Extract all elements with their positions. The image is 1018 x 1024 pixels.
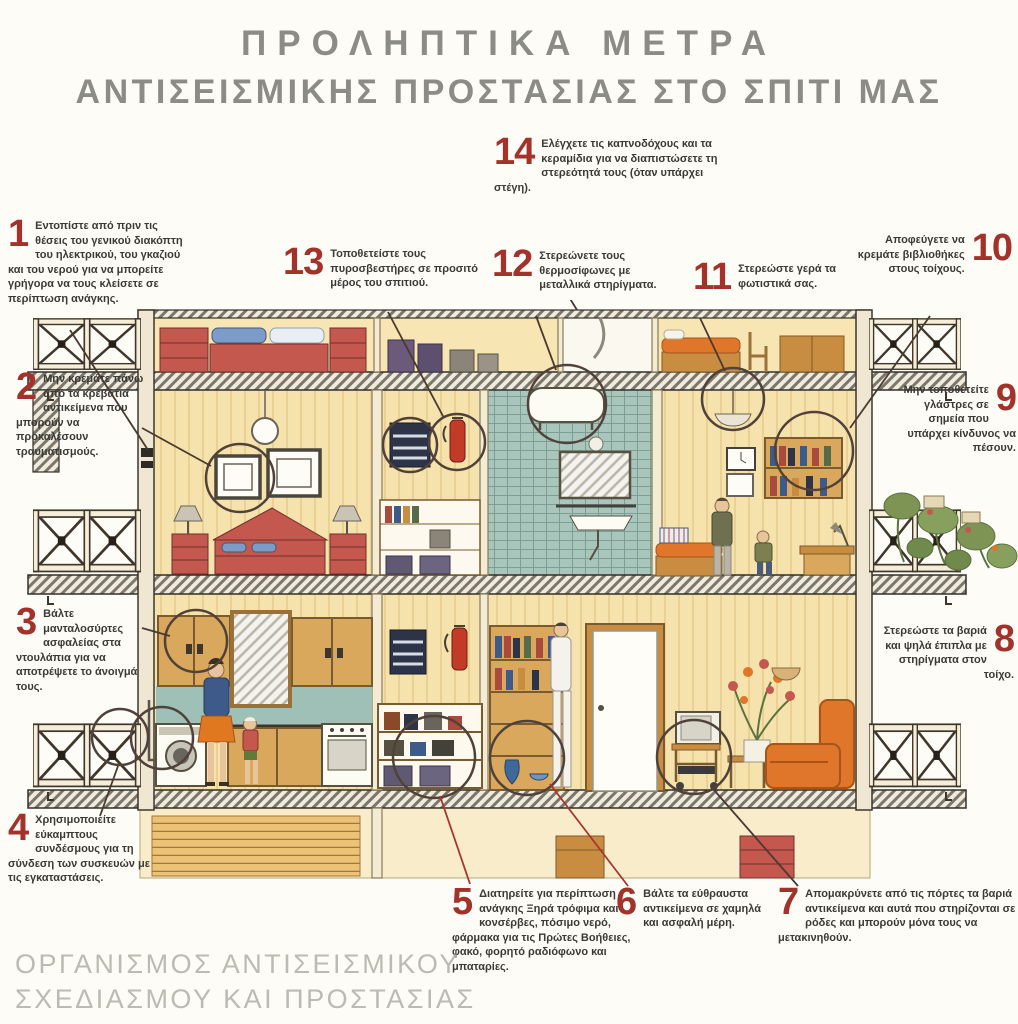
tip-12: 12 Στερεώνετε τους θερμοσίφωνες με μεταλ… bbox=[492, 249, 680, 293]
tip-10: 10 Αποφεύγετε να κρεμάτε βιβλιοθήκες στο… bbox=[856, 233, 1012, 277]
pillow bbox=[664, 330, 684, 339]
nightstand bbox=[330, 534, 366, 574]
tip-12-number: 12 bbox=[492, 249, 532, 279]
water-heater bbox=[528, 388, 604, 422]
attic-dresser-right bbox=[330, 328, 366, 372]
tip-11-text: Στερεώστε γερά τα φωτιστικά σας. bbox=[738, 263, 836, 290]
tip-6-number: 6 bbox=[616, 887, 636, 917]
tip-9: 9 Μην τοποθετείτε γλάστρες σε σημεία που… bbox=[890, 383, 1016, 456]
fire-extinguisher bbox=[450, 420, 465, 462]
mirror bbox=[560, 452, 630, 498]
pillow bbox=[252, 543, 276, 552]
fire-extinguisher bbox=[452, 628, 467, 670]
tip-3: 3 Βάλτε μανταλοσύρτες ασφαλείας στα ντου… bbox=[16, 607, 144, 694]
bedding-stack bbox=[212, 328, 266, 343]
storage-bin bbox=[386, 556, 412, 574]
tip-7-text: Απομακρύνετε από τις πόρτες τα βαριά αντ… bbox=[778, 888, 1015, 944]
poster-title-line2: ΑΝΤΙΣΕΙΣΜΙΚΗΣ ΠΡΟΣΤΑΣΙΑΣ ΣΤΟ ΣΠΙΤΙ ΜΑΣ bbox=[0, 73, 1018, 112]
tip-11: 11 Στερεώστε γερά τα φωτιστικά σας. bbox=[693, 262, 851, 292]
ceiling-lamp bbox=[252, 418, 278, 444]
tip-4-text: Χρησιμοποιείτε εύκαμπτους συνδέσμους για… bbox=[8, 814, 150, 884]
storage-chest bbox=[556, 836, 604, 878]
flower-pot bbox=[962, 512, 980, 523]
poster-title: ΠΡΟΛΗΠΤΙΚΑ ΜΕΤΡΑ ΑΝΤΙΣΕΙΣΜΙΚΗΣ ΠΡΟΣΤΑΣΙΑ… bbox=[0, 24, 1018, 112]
tip-7-number: 7 bbox=[778, 887, 798, 917]
tip-4: 4 Χρησιμοποιείτε εύκαμπτους συνδέσμους γ… bbox=[8, 813, 160, 886]
tip-6-text: Βάλτε τα εύθραυστα αντικείμενα σε χαμηλά… bbox=[643, 888, 761, 929]
nightstand bbox=[172, 534, 208, 574]
house-cross-section-illustration bbox=[0, 300, 1018, 892]
tip-8-number: 8 bbox=[994, 624, 1014, 654]
wall-radio bbox=[390, 630, 426, 674]
storage-bin bbox=[420, 556, 450, 574]
tip-14: 14 Ελέγχετε τις καπνοδόχους και τα κεραμ… bbox=[494, 137, 742, 195]
washing-machine bbox=[156, 724, 206, 786]
suitcase bbox=[418, 344, 442, 372]
tip-13: 13 Τοποθετείστε τους πυροσβεστήρες σε πρ… bbox=[283, 247, 481, 291]
poster-title-line1: ΠΡΟΛΗΠΤΙΚΑ ΜΕΤΡΑ bbox=[0, 24, 1018, 64]
pillow bbox=[222, 543, 246, 552]
heater-valve bbox=[589, 437, 603, 451]
floor-slab-lower bbox=[28, 790, 966, 808]
floor-slab-middle bbox=[28, 575, 966, 594]
door bbox=[586, 624, 664, 791]
kitchen-window bbox=[232, 612, 290, 706]
roof-slab bbox=[138, 310, 870, 318]
tip-2-number: 2 bbox=[16, 372, 36, 402]
standing-person bbox=[551, 623, 571, 787]
daybed-mattress bbox=[656, 543, 722, 557]
door-knob bbox=[598, 705, 604, 711]
tip-3-number: 3 bbox=[16, 607, 36, 637]
striped-cushion bbox=[660, 528, 688, 543]
earthquake-safety-poster: ΠΡΟΛΗΠΤΙΚΑ ΜΕΤΡΑ ΑΝΤΙΣΕΙΣΜΙΚΗΣ ΠΡΟΣΤΑΣΙΑ… bbox=[0, 0, 1018, 1024]
attic-mattress bbox=[662, 338, 740, 353]
organization-name-line1: ΟΡΓΑΝΙΣΜΟΣ ΑΝΤΙΣΕΙΣΜΙΚΟΥ bbox=[15, 947, 476, 982]
tip-13-number: 13 bbox=[283, 247, 323, 277]
tip-13-text: Τοποθετείστε τους πυροσβεστήρες σε προσι… bbox=[330, 248, 478, 289]
tip-10-text: Αποφεύγετε να κρεμάτε βιβλιοθήκες στους … bbox=[858, 234, 965, 275]
tip-7: 7 Απομακρύνετε από τις πόρτες τα βαριά α… bbox=[778, 887, 1018, 945]
floor-slab-upper bbox=[28, 372, 966, 390]
attic-chest bbox=[210, 344, 328, 372]
tip-1-text: Εντοπίστε από πριν τις θέσεις του γενικο… bbox=[8, 220, 183, 305]
tip-11-number: 11 bbox=[693, 262, 731, 292]
tip-10-number: 10 bbox=[972, 233, 1012, 263]
leader-tip14 bbox=[540, 300, 577, 310]
attic-dresser-left bbox=[160, 328, 208, 372]
tip-12-text: Στερεώνετε τους θερμοσίφωνες με μεταλλικ… bbox=[539, 250, 656, 291]
balcony-plants bbox=[884, 493, 1017, 570]
flower-pot bbox=[924, 496, 944, 508]
radio-unit bbox=[390, 423, 430, 467]
tip-2: 2 Μην κρεμάτε πάνω από τα κρεβάτια αντικ… bbox=[16, 372, 144, 459]
organization-name: ΟΡΓΑΝΙΣΜΟΣ ΑΝΤΙΣΕΙΣΜΙΚΟΥ ΣΧΕΔΙΑΣΜΟΥ ΚΑΙ … bbox=[15, 947, 476, 1016]
wood-slat-wall bbox=[152, 816, 360, 876]
tip-5: 5 Διατηρείτε για περίπτωση ανάγκης Ξηρά … bbox=[452, 887, 632, 974]
kitchen bbox=[155, 612, 372, 786]
building-shell bbox=[28, 310, 966, 878]
sink bbox=[570, 516, 632, 530]
tip-1-number: 1 bbox=[8, 219, 28, 249]
tip-8: 8 Στερεώστε τα βαριά και ψηλά έπιπλα με … bbox=[882, 624, 1014, 682]
tip-5-number: 5 bbox=[452, 887, 472, 917]
tip-9-number: 9 bbox=[996, 383, 1016, 413]
stove bbox=[322, 724, 372, 786]
small-picture bbox=[727, 474, 753, 496]
tip-14-number: 14 bbox=[494, 137, 534, 167]
tip-6: 6 Βάλτε τα εύθραυστα αντικείμενα σε χαμη… bbox=[616, 887, 778, 931]
tip-1: 1 Εντοπίστε από πριν τις θέσεις του γενι… bbox=[8, 219, 192, 306]
organization-name-line2: ΣΧΕΔΙΑΣΜΟΥ ΚΑΙ ΠΡΟΣΤΑΣΙΑΣ bbox=[15, 982, 476, 1017]
storage-box bbox=[478, 354, 498, 372]
storage-box bbox=[450, 350, 474, 372]
tip-5-text: Διατηρείτε για περίπτωση ανάγκης Ξηρά τρ… bbox=[452, 888, 631, 973]
daybed-base bbox=[656, 556, 722, 576]
tip-4-number: 4 bbox=[8, 813, 28, 843]
suitcase bbox=[388, 340, 414, 372]
bedding-stack bbox=[270, 328, 324, 343]
